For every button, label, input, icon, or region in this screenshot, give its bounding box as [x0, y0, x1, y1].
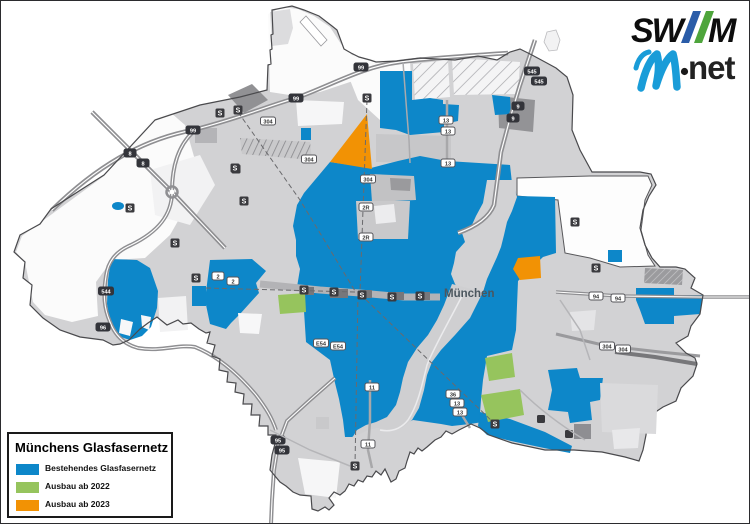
svg-text:E54: E54	[316, 341, 327, 347]
svg-text:S: S	[173, 241, 178, 248]
svg-text:8: 8	[128, 151, 131, 157]
svg-text:11: 11	[369, 385, 375, 391]
svg-text:13: 13	[454, 401, 460, 407]
svg-text:8: 8	[141, 161, 144, 167]
svg-text:11: 11	[365, 442, 371, 448]
svg-text:13: 13	[445, 161, 451, 167]
svg-text:M: M	[708, 12, 737, 46]
svg-text:2: 2	[231, 279, 234, 285]
svg-text:S: S	[573, 220, 578, 227]
svg-text:96: 96	[100, 325, 106, 331]
svg-text:13: 13	[443, 118, 449, 124]
svg-text:2R: 2R	[362, 235, 369, 241]
svg-text:9: 9	[511, 116, 514, 122]
svg-text:SW: SW	[631, 12, 687, 46]
svg-text:2: 2	[216, 274, 219, 280]
svg-text:S: S	[194, 276, 199, 283]
svg-text:E54: E54	[333, 344, 344, 350]
svg-text:36: 36	[450, 392, 456, 398]
svg-text:S: S	[302, 288, 307, 295]
svg-text:S: S	[218, 111, 223, 118]
svg-text:net: net	[688, 49, 736, 86]
svg-text:99: 99	[293, 96, 299, 102]
svg-text:S: S	[365, 96, 370, 103]
svg-text:304: 304	[304, 157, 314, 163]
svg-text:544: 544	[101, 289, 111, 295]
svg-text:2R: 2R	[362, 205, 369, 211]
svg-text:95: 95	[279, 448, 285, 454]
svg-text:S: S	[418, 294, 423, 301]
svg-text:99: 99	[190, 128, 196, 134]
svg-text:13: 13	[445, 129, 451, 135]
svg-text:S: S	[128, 206, 133, 213]
svg-text:S: S	[353, 464, 358, 471]
svg-text:S: S	[236, 108, 241, 115]
svg-text:9: 9	[516, 104, 519, 110]
svg-text:94: 94	[615, 296, 622, 302]
svg-text:304: 304	[263, 119, 273, 125]
svg-text:S: S	[390, 295, 395, 302]
svg-text:S: S	[493, 422, 498, 429]
svg-text:304: 304	[602, 344, 612, 350]
svg-text:S: S	[360, 293, 365, 300]
svg-text:München: München	[444, 288, 494, 300]
svg-text:545: 545	[534, 79, 543, 85]
svg-text:304: 304	[618, 347, 628, 353]
svg-text:S: S	[233, 166, 238, 173]
svg-text:S: S	[594, 266, 599, 273]
svg-text:545: 545	[527, 69, 536, 75]
svg-text:99: 99	[358, 65, 364, 71]
svg-text:13: 13	[457, 410, 463, 416]
svg-text:304: 304	[363, 177, 373, 183]
svg-text:95: 95	[275, 438, 281, 444]
svg-text:S: S	[332, 290, 337, 297]
svg-text:S: S	[242, 199, 247, 206]
svg-text:94: 94	[593, 294, 600, 300]
